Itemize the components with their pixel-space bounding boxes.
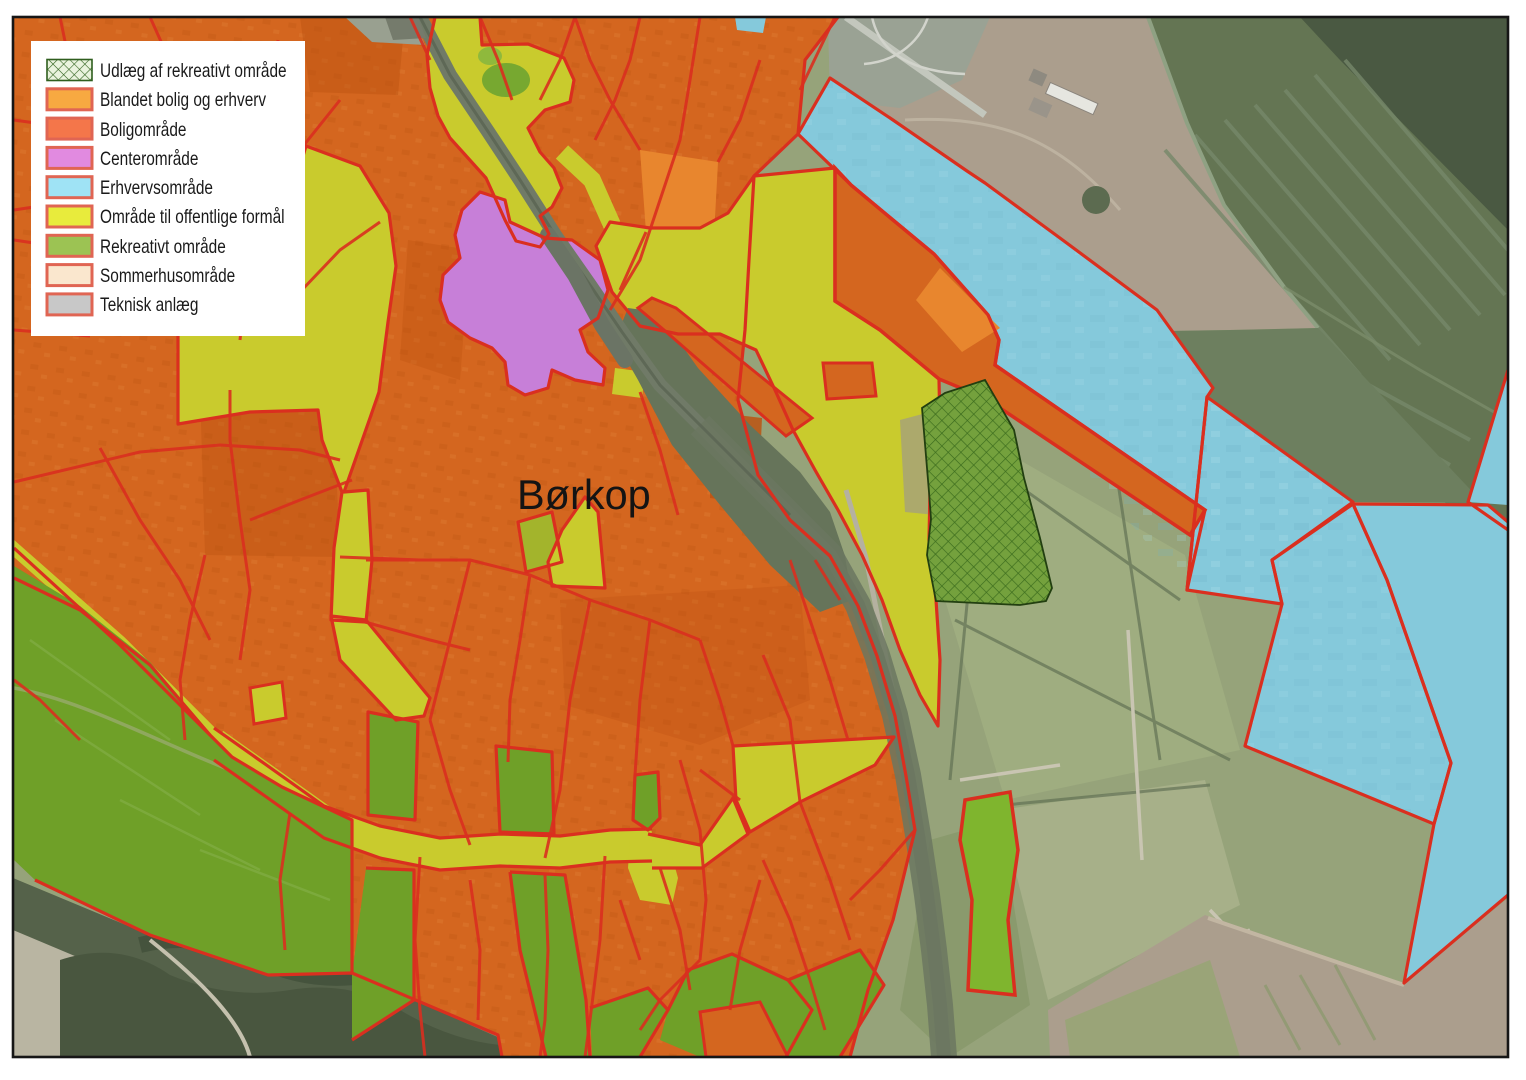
svg-text:Rekreativt område: Rekreativt område xyxy=(100,236,226,258)
svg-text:Udlæg af rekreativt område: Udlæg af rekreativt område xyxy=(100,60,287,82)
svg-text:Sommerhusområde: Sommerhusområde xyxy=(100,265,235,287)
svg-text:Boligområde: Boligområde xyxy=(100,119,187,141)
svg-text:Centerområde: Centerområde xyxy=(100,148,198,170)
svg-text:Teknisk anlæg: Teknisk anlæg xyxy=(100,294,198,316)
svg-text:Blandet bolig og erhverv: Blandet bolig og erhverv xyxy=(100,89,266,111)
svg-text:Område til offentlige formål: Område til offentlige formål xyxy=(100,206,285,228)
svg-text:Erhvervsområde: Erhvervsområde xyxy=(100,177,213,199)
svg-text:Børkop: Børkop xyxy=(517,471,651,518)
